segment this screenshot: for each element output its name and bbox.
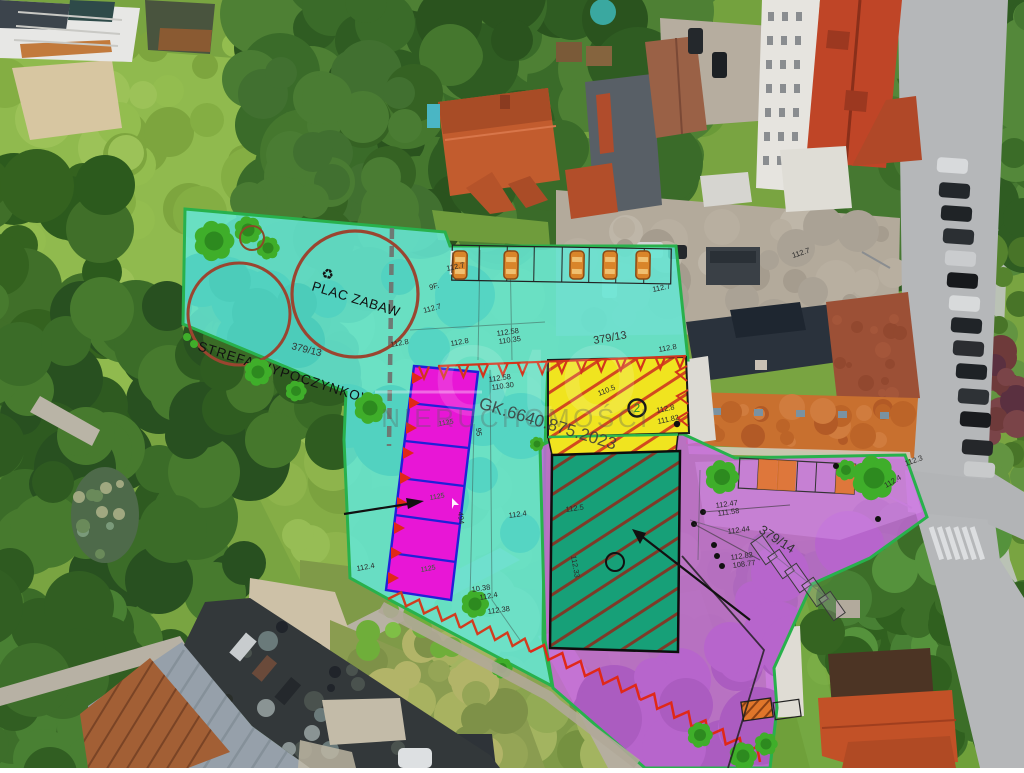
svg-text:494: 494 xyxy=(456,511,466,524)
svg-text:95: 95 xyxy=(474,427,484,436)
